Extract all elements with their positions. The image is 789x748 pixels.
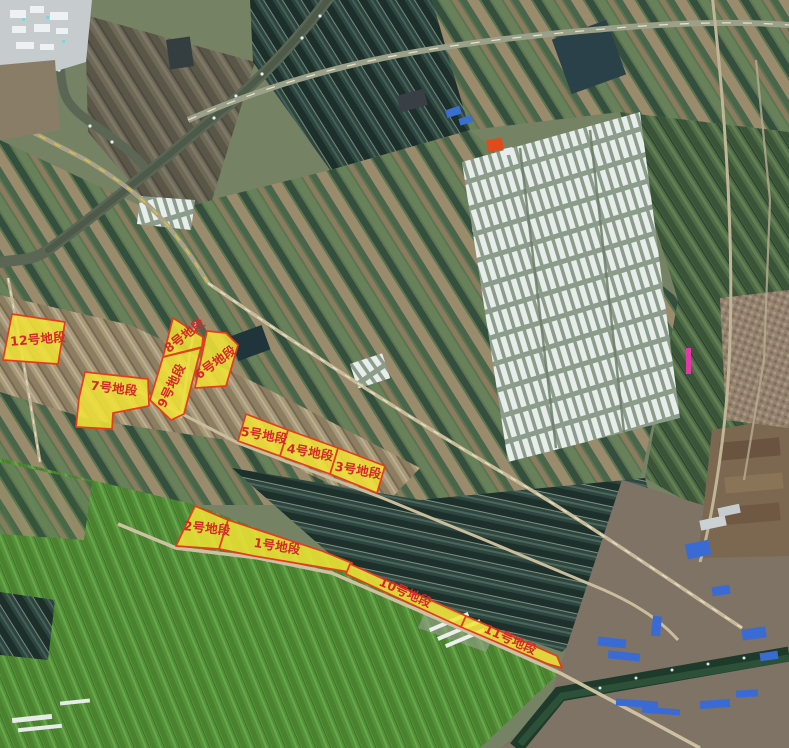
map-terrain-feature (300, 36, 303, 39)
map-terrain-feature (46, 16, 49, 19)
map-terrain-feature (12, 26, 26, 33)
map-terrain-feature (260, 72, 263, 75)
map-terrain-feature (212, 116, 215, 119)
map-terrain-feature (10, 10, 26, 18)
map-terrain-feature (707, 663, 710, 666)
ponds-bottom-left (0, 592, 55, 660)
satellite-background (0, 0, 789, 748)
map-terrain-feature (40, 44, 54, 50)
map-canvas: 1号地段2号地段3号地段4号地段5号地段6号地段7号地段8号地段9号地段10号地… (0, 0, 789, 748)
map-terrain-feature (56, 28, 68, 34)
map-terrain-feature (318, 14, 321, 17)
map-terrain-feature (16, 42, 34, 49)
map-terrain-feature (671, 669, 674, 672)
map-terrain-feature (50, 12, 68, 20)
wasteland (0, 60, 60, 140)
pink-marker (686, 348, 691, 374)
map-terrain-feature (110, 140, 113, 143)
map-terrain-feature (34, 24, 50, 32)
map-terrain-feature (22, 18, 25, 21)
map-terrain-feature (743, 657, 746, 660)
map-terrain-feature (599, 687, 602, 690)
satellite-map: 1号地段2号地段3号地段4号地段5号地段6号地段7号地段8号地段9号地段10号地… (0, 0, 789, 748)
map-terrain-feature (30, 6, 44, 13)
map-terrain-feature (635, 677, 638, 680)
dark-pond (166, 36, 194, 69)
map-terrain-feature (88, 124, 91, 127)
parcel-12[interactable]: 12号地段 (3, 314, 67, 364)
map-terrain-feature (62, 40, 65, 43)
